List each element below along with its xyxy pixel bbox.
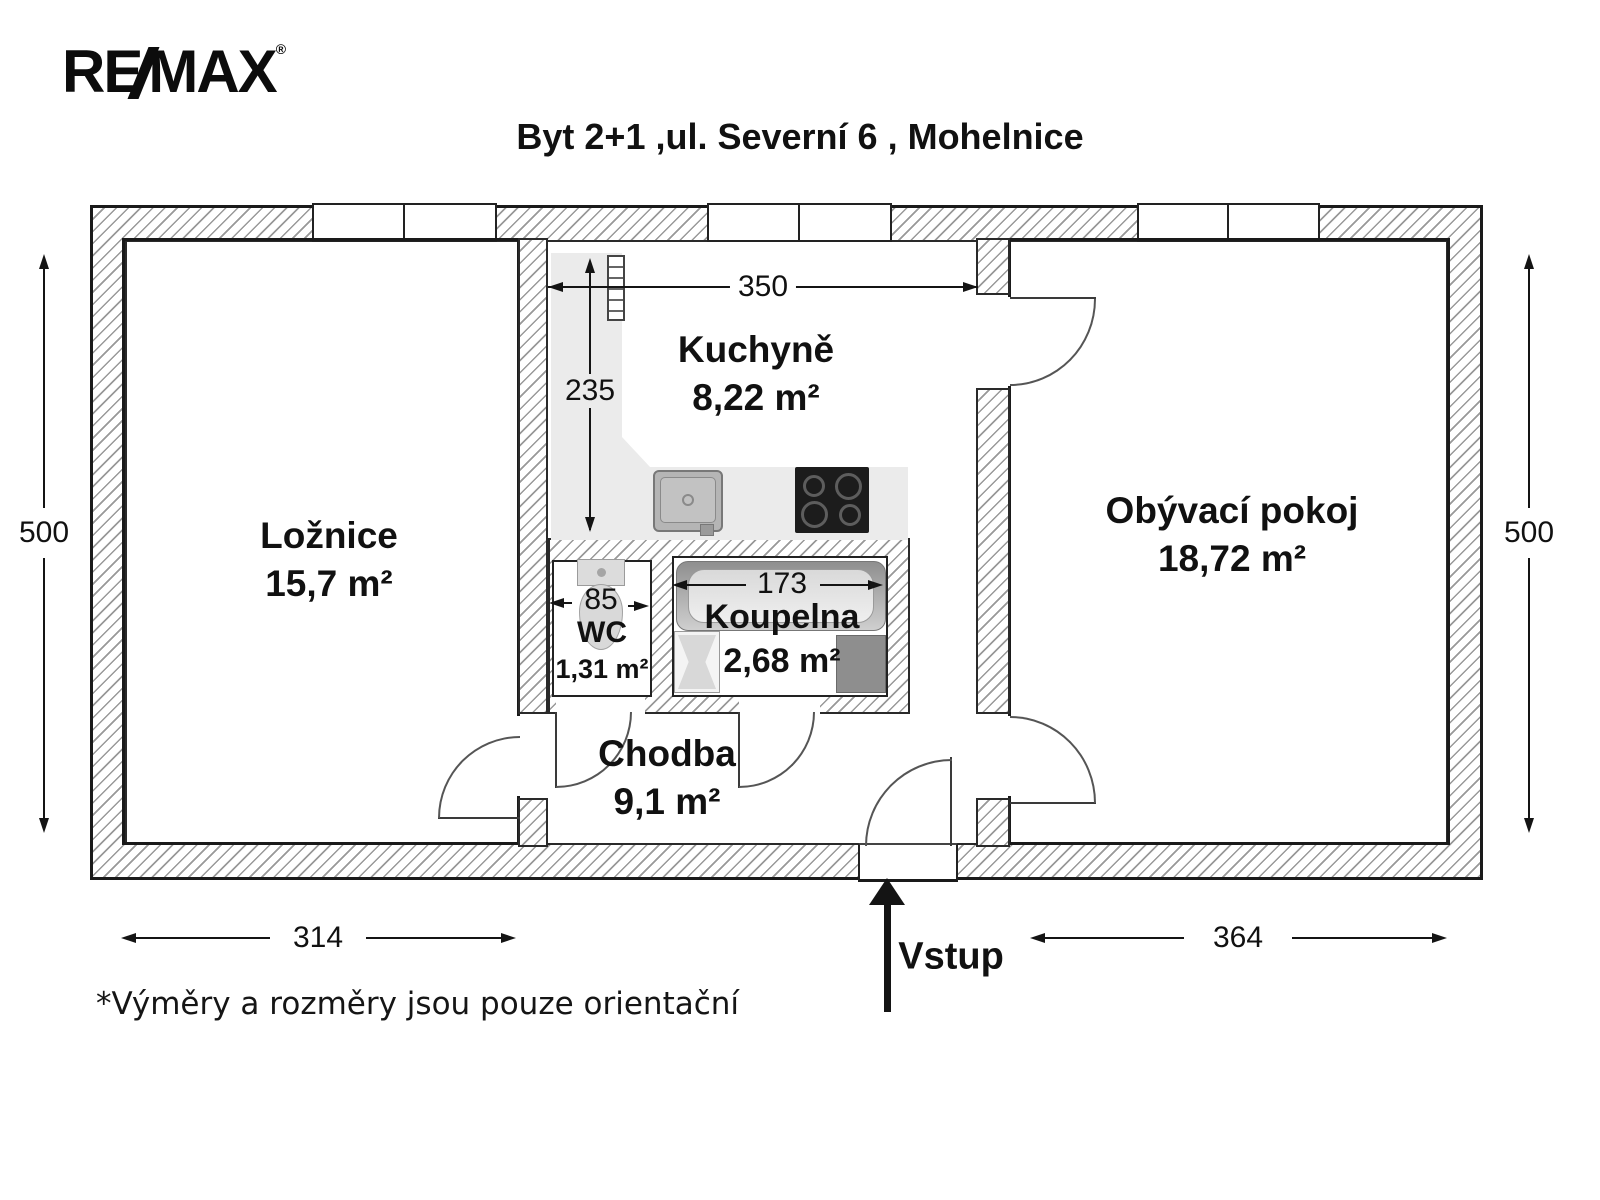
burner-icon xyxy=(801,501,828,528)
room-name: Ložnice xyxy=(260,512,398,560)
dim-label-left-height: 500 xyxy=(19,516,69,550)
arrowhead-icon xyxy=(548,282,563,292)
arrowhead-icon xyxy=(1030,933,1045,943)
dim-label-kitchen-width: 350 xyxy=(730,270,796,304)
room-name: Chodba xyxy=(598,730,736,778)
room-label-chodba: Chodba 9,1 m² xyxy=(598,730,736,826)
entrance-opening xyxy=(858,843,958,882)
room-name: WC xyxy=(555,613,648,652)
logo-text-max: MAX xyxy=(148,38,275,105)
door-opening-bedroom xyxy=(516,716,550,796)
door-opening-living-bottom xyxy=(974,716,1012,796)
room-label-kuchyne: Kuchyně 8,22 m² xyxy=(678,326,834,422)
arrowhead-icon xyxy=(549,598,564,608)
dim-line-364 xyxy=(1044,937,1184,939)
room-name: Obývací pokoj xyxy=(1106,487,1359,535)
dim-line-173 xyxy=(820,584,870,586)
radiator xyxy=(607,255,625,321)
sink-drain-icon xyxy=(682,494,694,506)
burner-icon xyxy=(839,504,861,526)
arrowhead-icon xyxy=(1432,933,1447,943)
window-divider xyxy=(1227,205,1229,240)
burner-icon xyxy=(803,475,825,497)
dim-label-kitchen-height: 235 xyxy=(561,374,619,408)
footer-disclaimer: *Výměry a rozměry jsou pouze orientační xyxy=(96,986,739,1022)
wall-segment xyxy=(976,798,1010,847)
arrowhead-icon xyxy=(1524,818,1534,833)
entrance-label: Vstup xyxy=(898,936,1004,979)
room-area: 9,1 m² xyxy=(598,778,736,826)
sink-faucet-icon xyxy=(700,524,714,536)
dim-label-wc-width: 85 xyxy=(584,583,617,617)
dim-line-500-right xyxy=(1528,558,1530,820)
wall-segment xyxy=(518,798,548,847)
floorplan-canvas: REMAX® Byt 2+1 ,ul. Severní 6 , Mohelnic… xyxy=(0,0,1600,1200)
burner-icon xyxy=(835,473,862,500)
arrowhead-icon xyxy=(868,580,883,590)
entrance-arrow-icon xyxy=(884,900,891,1012)
arrowhead-icon xyxy=(963,282,978,292)
dim-label-bottom-right: 364 xyxy=(1213,921,1263,955)
dim-label-right-height: 500 xyxy=(1504,516,1554,550)
dim-line-314 xyxy=(366,937,501,939)
room-area: 18,72 m² xyxy=(1106,535,1359,583)
plan-title: Byt 2+1 ,ul. Severní 6 , Mohelnice xyxy=(516,116,1083,158)
room-label-obyvaci: Obývací pokoj 18,72 m² xyxy=(1106,487,1359,583)
arrowhead-icon xyxy=(501,933,516,943)
room-area: 1,31 m² xyxy=(555,652,648,687)
wall-segment xyxy=(976,238,1010,295)
arrowhead-icon xyxy=(585,258,595,273)
toilet-button-icon xyxy=(597,568,606,577)
dim-line-364 xyxy=(1292,937,1432,939)
room-label-loznice: Ložnice 15,7 m² xyxy=(260,512,398,608)
room-name: Kuchyně xyxy=(678,326,834,374)
arrowhead-icon xyxy=(39,818,49,833)
dim-line-500-left xyxy=(43,558,45,820)
room-label-koupelna: Koupelna 2,68 m² xyxy=(705,595,860,683)
room-name: Koupelna xyxy=(705,595,860,639)
dim-line-500-right xyxy=(1528,268,1530,508)
arrowhead-icon xyxy=(39,254,49,269)
arrowhead-icon xyxy=(121,933,136,943)
dim-line-500-left xyxy=(43,268,45,508)
wall-segment xyxy=(518,238,548,714)
dim-line-173 xyxy=(686,584,746,586)
window-divider xyxy=(403,205,405,240)
wall-segment xyxy=(976,388,1010,714)
arrowhead-icon xyxy=(1524,254,1534,269)
dim-line-314 xyxy=(135,937,270,939)
room-area: 8,22 m² xyxy=(678,374,834,422)
room-area: 2,68 m² xyxy=(705,639,860,683)
room-area: 15,7 m² xyxy=(260,560,398,608)
arrowhead-icon xyxy=(672,580,687,590)
door-opening-living-top xyxy=(974,297,1012,386)
arrowhead-icon xyxy=(585,517,595,532)
registered-mark: ® xyxy=(276,41,286,57)
entrance-arrowhead-icon xyxy=(869,878,905,905)
window-divider xyxy=(798,205,800,240)
remax-logo: REMAX® xyxy=(62,42,286,102)
room-label-wc: WC 1,31 m² xyxy=(555,613,648,687)
arrowhead-icon xyxy=(634,601,649,611)
dim-label-bottom-left: 314 xyxy=(293,921,343,955)
